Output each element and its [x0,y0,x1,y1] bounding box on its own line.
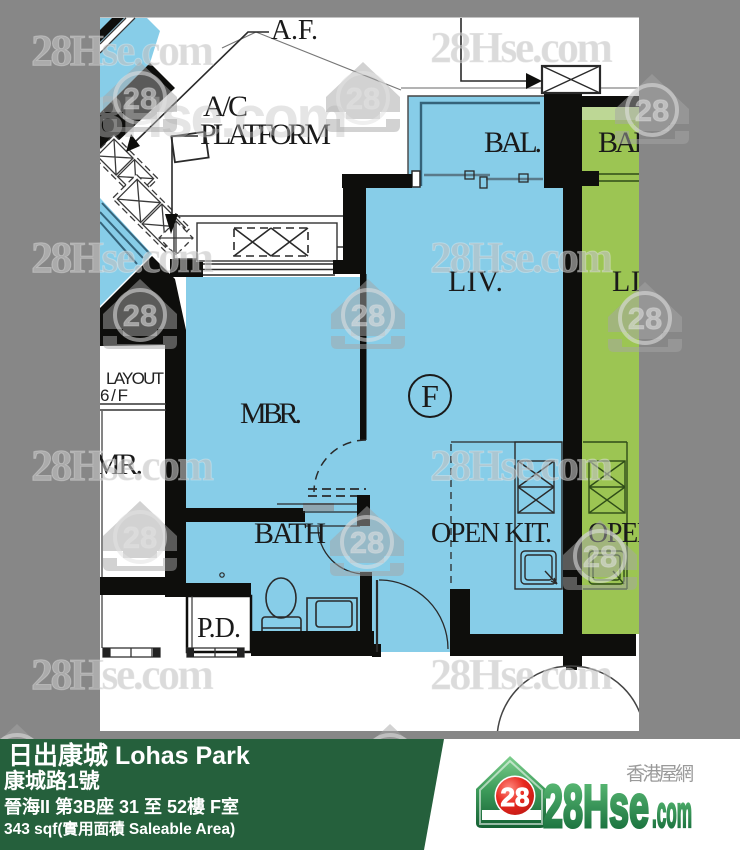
svg-text:康城路1號: 康城路1號 [4,769,100,793]
svg-text:MBR.: MBR. [240,397,302,430]
svg-text:28Hse.com: 28Hse.com [62,85,348,150]
svg-text:6/F: 6/F [100,386,128,405]
svg-text:日出康城 Lohas Park: 日出康城 Lohas Park [8,741,250,770]
svg-text:28Hse.com: 28Hse.com [430,233,613,282]
svg-text:28Hse.com: 28Hse.com [31,650,214,699]
svg-text:A.F.: A.F. [271,15,318,46]
svg-text:28Hse.com: 28Hse.com [430,650,613,699]
svg-text:28: 28 [501,782,530,812]
svg-text:.com: .com [652,788,692,837]
svg-text:BATH: BATH [254,517,326,550]
svg-text:香港屋網: 香港屋網 [626,763,694,785]
svg-text:28Hse.com: 28Hse.com [430,441,613,490]
svg-text:28Hse.com: 28Hse.com [31,26,214,75]
svg-text:晉海II 第3B座 31 至 52樓 F室: 晉海II 第3B座 31 至 52樓 F室 [4,796,239,817]
svg-text:28Hse.com: 28Hse.com [31,233,214,282]
svg-text:BAL.: BAL. [484,126,542,159]
svg-text:P.D.: P.D. [197,613,241,644]
svg-text:OPEN KIT.: OPEN KIT. [431,518,552,549]
svg-text:343 sqf(實用面積 Saleable Area): 343 sqf(實用面積 Saleable Area) [4,819,235,838]
svg-text:F: F [421,378,439,414]
svg-text:28Hse.com: 28Hse.com [31,441,214,490]
svg-text:28Hse.com: 28Hse.com [430,23,613,72]
